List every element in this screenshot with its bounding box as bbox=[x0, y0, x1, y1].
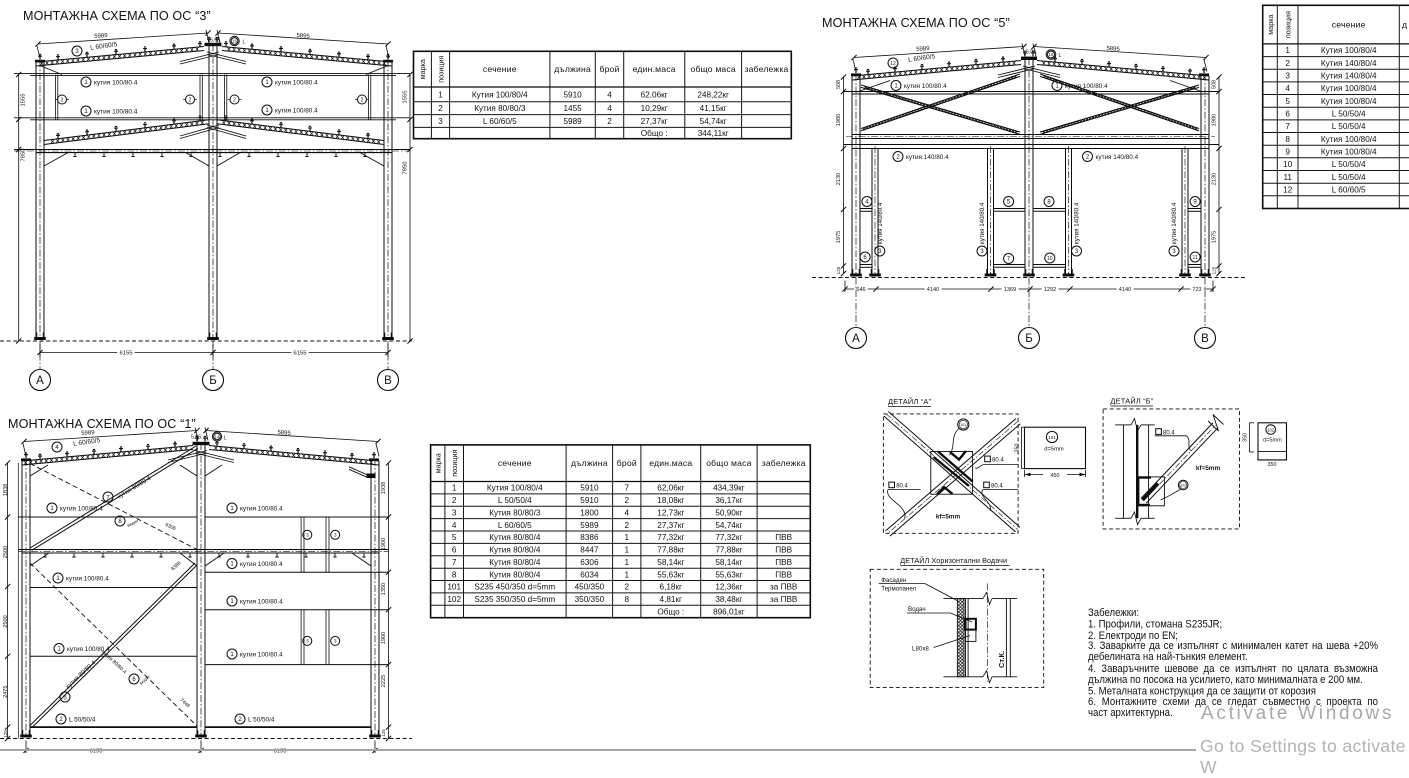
svg-text:7: 7 bbox=[106, 495, 110, 501]
svg-text:Общо :: Общо : bbox=[641, 129, 668, 138]
svg-text:марка: марка bbox=[418, 59, 427, 79]
svg-text:7448: 7448 bbox=[179, 697, 191, 709]
svg-text:3: 3 bbox=[1172, 249, 1176, 255]
svg-text:един.маса: един.маса bbox=[649, 458, 692, 468]
svg-text:2130: 2130 bbox=[1212, 173, 1218, 185]
svg-text:сечение: сечение bbox=[483, 64, 517, 74]
svg-text:Кутия 100/80/4: Кутия 100/80/4 bbox=[1321, 84, 1377, 93]
svg-text:2475: 2475 bbox=[3, 685, 9, 697]
svg-text:434,39кг: 434,39кг bbox=[713, 484, 745, 493]
svg-text:4: 4 bbox=[625, 509, 630, 518]
svg-text:2: 2 bbox=[452, 496, 457, 505]
svg-text:6: 6 bbox=[863, 255, 867, 261]
svg-text:L 50/50/4: L 50/50/4 bbox=[69, 717, 96, 724]
svg-text:за ПВВ: за ПВВ bbox=[770, 583, 798, 592]
svg-text:МОНТАЖНА СХЕМА ПО ОС “5”: МОНТАЖНА СХЕМА ПО ОС “5” bbox=[822, 16, 1010, 30]
svg-text:2500: 2500 bbox=[3, 615, 9, 627]
svg-text:5895: 5895 bbox=[1106, 46, 1120, 53]
svg-text:Ст.К.: Ст.К. bbox=[997, 651, 1006, 668]
svg-text:кутия 100/80.4: кутия 100/80.4 bbox=[275, 80, 318, 87]
svg-text:1975: 1975 bbox=[836, 231, 842, 243]
svg-text:5910: 5910 bbox=[563, 90, 582, 99]
svg-text:16: 16 bbox=[232, 39, 237, 44]
svg-text:3: 3 bbox=[334, 533, 337, 539]
svg-text:2130: 2130 bbox=[836, 173, 842, 185]
svg-text:1: 1 bbox=[438, 90, 443, 99]
svg-text:7850: 7850 bbox=[20, 149, 26, 162]
svg-text:8: 8 bbox=[118, 519, 122, 525]
svg-text:кутия 100/80.4: кутия 100/80.4 bbox=[240, 506, 283, 513]
svg-text:55,63кг: 55,63кг bbox=[657, 570, 684, 579]
svg-text:ДЕТАЙЛ “А”: ДЕТАЙЛ “А” bbox=[888, 397, 932, 406]
svg-text:8447: 8447 bbox=[580, 546, 599, 555]
svg-text:кутия 100/80.4: кутия 100/80.4 bbox=[275, 108, 318, 115]
svg-text:1: 1 bbox=[625, 558, 630, 567]
svg-text:кутия 100/80.4: кутия 100/80.4 bbox=[240, 599, 283, 606]
svg-text:А: А bbox=[36, 375, 44, 387]
svg-text:58,14кг: 58,14кг bbox=[657, 558, 684, 567]
svg-text:55,63кг: 55,63кг bbox=[715, 570, 742, 579]
svg-text:кутия 140/80.4: кутия 140/80.4 bbox=[1074, 202, 1081, 244]
svg-text:8: 8 bbox=[1047, 200, 1051, 206]
svg-text:Кутия 80/80/4: Кутия 80/80/4 bbox=[489, 570, 541, 579]
svg-text:5: 5 bbox=[63, 695, 67, 701]
svg-text:кутия 140/80.4: кутия 140/80.4 bbox=[979, 202, 986, 244]
svg-text:1: 1 bbox=[57, 647, 61, 653]
svg-text:2: 2 bbox=[189, 98, 192, 104]
svg-text:80.4: 80.4 bbox=[992, 458, 1004, 464]
svg-text:за ПВВ: за ПВВ bbox=[770, 595, 798, 604]
svg-text:6306: 6306 bbox=[164, 522, 177, 532]
svg-text:кутия 100/80.4: кутия 100/80.4 bbox=[67, 646, 110, 653]
svg-text:Кутия 80/80/4: Кутия 80/80/4 bbox=[489, 533, 541, 542]
svg-text:10: 10 bbox=[1283, 160, 1293, 169]
svg-text:3: 3 bbox=[334, 639, 337, 645]
svg-text:18,08кг: 18,08кг bbox=[657, 496, 684, 505]
svg-text:1: 1 bbox=[56, 576, 60, 582]
svg-text:4140: 4140 bbox=[1119, 287, 1131, 293]
svg-text:Кутия 100/80/4: Кутия 100/80/4 bbox=[472, 90, 528, 99]
svg-text:В: В bbox=[1201, 333, 1209, 345]
svg-text:2: 2 bbox=[625, 583, 630, 592]
svg-text:общо маса: общо маса bbox=[706, 458, 751, 468]
svg-text:646: 646 bbox=[856, 287, 865, 293]
svg-text:марка: марка bbox=[434, 453, 443, 473]
svg-text:508: 508 bbox=[836, 80, 842, 89]
svg-text:101: 101 bbox=[1048, 435, 1056, 440]
svg-text:2: 2 bbox=[625, 521, 630, 530]
svg-text:102: 102 bbox=[1181, 484, 1187, 488]
svg-text:8: 8 bbox=[452, 570, 457, 579]
svg-text:77,88кг: 77,88кг bbox=[657, 546, 684, 555]
svg-text:видач: видач bbox=[126, 518, 139, 528]
svg-text:16: 16 bbox=[1049, 52, 1054, 57]
svg-text:1: 1 bbox=[50, 506, 54, 512]
svg-text:5989: 5989 bbox=[94, 33, 108, 40]
svg-text:54,74кг: 54,74кг bbox=[715, 521, 742, 530]
svg-text:6155: 6155 bbox=[294, 351, 307, 357]
svg-text:ПВВ: ПВВ bbox=[775, 546, 792, 555]
svg-text:8386: 8386 bbox=[170, 560, 182, 572]
svg-text:1: 1 bbox=[625, 546, 630, 555]
svg-text:3: 3 bbox=[306, 533, 309, 539]
svg-text:Кутия 100/80/4: Кутия 100/80/4 bbox=[487, 484, 543, 493]
svg-text:1980: 1980 bbox=[836, 114, 842, 126]
svg-text:62,06кг: 62,06кг bbox=[657, 484, 684, 493]
svg-text:12,36кг: 12,36кг bbox=[715, 583, 742, 592]
svg-text:1: 1 bbox=[625, 533, 630, 542]
svg-text:1980: 1980 bbox=[1212, 114, 1218, 126]
svg-text:кутия 100/80.4: кутия 100/80.4 bbox=[60, 506, 103, 513]
svg-text:2: 2 bbox=[61, 98, 64, 104]
svg-text:6034: 6034 bbox=[580, 570, 599, 579]
svg-text:кутия 100/80.4: кутия 100/80.4 bbox=[1065, 83, 1108, 90]
svg-text:5.06.: 5.06. bbox=[210, 38, 222, 44]
svg-text:9: 9 bbox=[1285, 148, 1290, 157]
svg-text:1555: 1555 bbox=[403, 91, 409, 104]
svg-text:общо маса: общо маса bbox=[690, 64, 735, 74]
svg-text:1: 1 bbox=[230, 652, 234, 658]
svg-text:сечение: сечение bbox=[498, 458, 532, 468]
svg-text:125: 125 bbox=[1212, 266, 1217, 274]
svg-text:Кутия 100/80/4: Кутия 100/80/4 bbox=[1321, 97, 1377, 106]
svg-text:позиция: позиция bbox=[436, 56, 445, 83]
svg-text:4140: 4140 bbox=[927, 287, 939, 293]
svg-text:8: 8 bbox=[625, 595, 630, 604]
svg-text:Кутия 100/80/4: Кутия 100/80/4 bbox=[1321, 135, 1377, 144]
svg-text:5: 5 bbox=[452, 533, 457, 542]
svg-text:ПВВ: ПВВ bbox=[775, 558, 792, 567]
svg-text:896,01кг: 896,01кг bbox=[713, 608, 745, 617]
svg-text:101: 101 bbox=[960, 423, 966, 427]
svg-text:забележка: забележка bbox=[762, 458, 806, 468]
svg-text:Кутия 100/80/4: Кутия 100/80/4 bbox=[1321, 148, 1377, 157]
svg-text:дължина: дължина bbox=[554, 64, 591, 74]
svg-text:S235 350/350 d=5mm: S235 350/350 d=5mm bbox=[474, 595, 555, 604]
svg-text:2: 2 bbox=[361, 98, 364, 104]
svg-text:344,11кг: 344,11кг bbox=[698, 129, 729, 138]
svg-text:Водач: Водач bbox=[908, 606, 926, 613]
svg-text:5: 5 bbox=[1007, 200, 1011, 206]
svg-text:6: 6 bbox=[452, 546, 457, 555]
svg-text:Кутия 80/80/3: Кутия 80/80/3 bbox=[489, 509, 541, 518]
svg-text:27,37кг: 27,37кг bbox=[641, 117, 668, 126]
svg-text:S235 450/350 d=5mm: S235 450/350 d=5mm bbox=[474, 583, 555, 592]
svg-text:ПВВ: ПВВ bbox=[775, 533, 792, 542]
svg-text:27,37кг: 27,37кг bbox=[657, 521, 684, 530]
svg-text:10: 10 bbox=[1047, 256, 1053, 262]
svg-text:5989: 5989 bbox=[580, 521, 599, 530]
svg-text:125: 125 bbox=[836, 266, 841, 274]
svg-text:1555: 1555 bbox=[20, 94, 26, 107]
svg-text:кутия 80/80.4: кутия 80/80.4 bbox=[65, 659, 98, 690]
svg-text:L 50/50/4: L 50/50/4 bbox=[1332, 173, 1366, 182]
svg-text:Кутия 140/80/4: Кутия 140/80/4 bbox=[1321, 72, 1377, 81]
svg-text:2: 2 bbox=[1086, 155, 1090, 161]
svg-text:77,88кг: 77,88кг bbox=[715, 546, 742, 555]
svg-text:350: 350 bbox=[1242, 433, 1248, 442]
svg-text:4: 4 bbox=[55, 445, 59, 451]
svg-text:д: д bbox=[1402, 20, 1407, 30]
svg-text:L 50/50/4: L 50/50/4 bbox=[1332, 160, 1366, 169]
svg-text:5910: 5910 bbox=[580, 496, 599, 505]
svg-text:ДЕТАЙЛ Хоризонтални Водачи: ДЕТАЙЛ Хоризонтални Водачи bbox=[900, 556, 1007, 565]
svg-text:5989: 5989 bbox=[916, 46, 930, 53]
svg-text:2: 2 bbox=[607, 117, 612, 126]
svg-text:L 60/60/5: L 60/60/5 bbox=[498, 521, 532, 530]
svg-text:248,22кг: 248,22кг bbox=[697, 90, 729, 99]
svg-text:6,18кг: 6,18кг bbox=[660, 583, 683, 592]
svg-text:8386: 8386 bbox=[580, 533, 599, 542]
svg-text:77,32кг: 77,32кг bbox=[715, 533, 742, 542]
svg-text:L 60/60/5: L 60/60/5 bbox=[73, 437, 101, 448]
svg-text:2225: 2225 bbox=[381, 675, 387, 687]
svg-text:1: 1 bbox=[230, 599, 234, 605]
svg-text:7: 7 bbox=[625, 484, 630, 493]
svg-text:1: 1 bbox=[230, 562, 234, 568]
svg-text:1: 1 bbox=[265, 80, 269, 86]
svg-text:12: 12 bbox=[890, 61, 896, 67]
svg-text:1800: 1800 bbox=[580, 509, 599, 518]
svg-text:кутия 140/80.4: кутия 140/80.4 bbox=[877, 202, 884, 244]
svg-text:7: 7 bbox=[1285, 122, 1290, 131]
svg-text:1900: 1900 bbox=[381, 538, 387, 550]
svg-text:кутия 100/80.4: кутия 100/80.4 bbox=[240, 652, 283, 659]
svg-text:МОНТАЖНА СХЕМА ПО ОС “1”: МОНТАЖНА СХЕМА ПО ОС “1” bbox=[8, 417, 196, 431]
svg-text:41,15кг: 41,15кг bbox=[700, 104, 727, 113]
svg-text:1: 1 bbox=[1055, 84, 1059, 90]
svg-text:350: 350 bbox=[1268, 462, 1277, 468]
svg-text:2: 2 bbox=[1285, 59, 1290, 68]
svg-text:6155: 6155 bbox=[120, 351, 133, 357]
svg-text:2: 2 bbox=[438, 104, 443, 113]
svg-text:брой: брой bbox=[617, 458, 637, 468]
svg-text:8: 8 bbox=[1285, 135, 1290, 144]
svg-text:723: 723 bbox=[1192, 287, 1201, 293]
svg-text:L 50/50/4: L 50/50/4 bbox=[1332, 110, 1366, 119]
svg-text:видач: видач bbox=[138, 674, 150, 686]
svg-text:6: 6 bbox=[1285, 110, 1290, 119]
svg-text:1292: 1292 bbox=[1044, 287, 1056, 293]
svg-text:80.4: 80.4 bbox=[991, 484, 1003, 490]
svg-text:кутия 140/80.4: кутия 140/80.4 bbox=[1096, 154, 1139, 161]
svg-text:7: 7 bbox=[452, 558, 457, 567]
svg-text:2: 2 bbox=[896, 155, 900, 161]
svg-text:L 50/50/4: L 50/50/4 bbox=[248, 717, 275, 724]
svg-text:5: 5 bbox=[1285, 97, 1290, 106]
svg-text:80.4: 80.4 bbox=[896, 484, 908, 490]
svg-text:7850: 7850 bbox=[403, 162, 409, 175]
svg-text:kf=5mm: kf=5mm bbox=[1196, 465, 1221, 472]
svg-text:кутия 100/80.4: кутия 100/80.4 bbox=[94, 109, 138, 116]
svg-text:L 60/60/5: L 60/60/5 bbox=[90, 41, 118, 52]
svg-text:36,17кг: 36,17кг bbox=[715, 496, 742, 505]
svg-text:d=5mm: d=5mm bbox=[1044, 447, 1064, 453]
svg-text:14: 14 bbox=[215, 434, 220, 439]
svg-text:L 60/60/5: L 60/60/5 bbox=[1332, 186, 1366, 195]
svg-text:Б: Б bbox=[1025, 333, 1033, 345]
svg-text:6: 6 bbox=[132, 677, 136, 683]
svg-text:1975: 1975 bbox=[1212, 231, 1218, 243]
svg-text:125: 125 bbox=[3, 730, 8, 738]
svg-text:1838: 1838 bbox=[3, 484, 9, 496]
svg-text:6306: 6306 bbox=[580, 558, 599, 567]
svg-text:L: L bbox=[1059, 53, 1062, 59]
svg-text:2: 2 bbox=[59, 717, 63, 723]
svg-text:кутия 140/80.4: кутия 140/80.4 bbox=[1171, 202, 1178, 244]
svg-text:А: А bbox=[852, 333, 860, 345]
svg-text:4,81кг: 4,81кг bbox=[660, 595, 683, 604]
svg-text:кутия 100/80.4: кутия 100/80.4 bbox=[66, 576, 109, 583]
svg-text:kf=5mm: kf=5mm bbox=[936, 513, 961, 520]
svg-text:9: 9 bbox=[1193, 200, 1197, 206]
svg-text:Кутия 100/80/4: Кутия 100/80/4 bbox=[1321, 46, 1377, 55]
svg-text:Термопанел: Термопанел bbox=[881, 586, 916, 593]
svg-text:4: 4 bbox=[607, 90, 612, 99]
svg-text:L80x8: L80x8 bbox=[912, 645, 929, 652]
svg-text:54,74кг: 54,74кг bbox=[700, 117, 727, 126]
svg-text:2500: 2500 bbox=[3, 546, 9, 558]
svg-text:1: 1 bbox=[452, 484, 457, 493]
svg-text:2: 2 bbox=[625, 496, 630, 505]
svg-text:L 50/50/4: L 50/50/4 bbox=[1332, 122, 1366, 131]
svg-text:1: 1 bbox=[625, 570, 630, 579]
svg-text:МОНТАЖНА СХЕМА ПО ОС “3”: МОНТАЖНА СХЕМА ПО ОС “3” bbox=[23, 9, 211, 23]
svg-text:Кутия 80/80/4: Кутия 80/80/4 bbox=[489, 546, 541, 555]
svg-text:508: 508 bbox=[1212, 80, 1218, 89]
svg-text:5989: 5989 bbox=[81, 430, 95, 437]
svg-text:5895: 5895 bbox=[296, 33, 310, 40]
svg-text:кутия 140/80.4: кутия 140/80.4 bbox=[906, 154, 949, 161]
svg-text:3: 3 bbox=[438, 117, 443, 126]
svg-text:1369: 1369 bbox=[1004, 287, 1016, 293]
svg-text:125: 125 bbox=[381, 729, 386, 737]
svg-text:3: 3 bbox=[878, 249, 882, 255]
svg-text:брой: брой bbox=[599, 64, 619, 74]
svg-text:11: 11 bbox=[1283, 173, 1292, 182]
svg-text:В: В bbox=[384, 375, 392, 387]
svg-text:101: 101 bbox=[447, 583, 461, 592]
svg-text:2: 2 bbox=[233, 98, 236, 104]
svg-text:350/350: 350/350 bbox=[575, 595, 605, 604]
svg-text:10,29кг: 10,29кг bbox=[641, 104, 668, 113]
svg-text:3: 3 bbox=[452, 509, 457, 518]
svg-text:L 60/60/5: L 60/60/5 bbox=[908, 53, 936, 64]
svg-text:дължина: дължина bbox=[571, 458, 608, 468]
svg-text:4: 4 bbox=[607, 104, 612, 113]
svg-text:1: 1 bbox=[230, 506, 234, 512]
svg-text:11: 11 bbox=[1192, 255, 1197, 261]
svg-text:ДЕТАЙЛ “Б”: ДЕТАЙЛ “Б” bbox=[1110, 397, 1153, 406]
svg-text:102: 102 bbox=[447, 595, 461, 604]
svg-text:d=5mm: d=5mm bbox=[1263, 438, 1282, 444]
svg-text:5989: 5989 bbox=[563, 117, 582, 126]
svg-text:1: 1 bbox=[84, 80, 88, 86]
svg-text:450/350: 450/350 bbox=[575, 583, 605, 592]
svg-text:2: 2 bbox=[238, 717, 242, 723]
svg-text:Фасаден: Фасаден bbox=[881, 577, 906, 584]
svg-text:един.маса: един.маса bbox=[633, 64, 676, 74]
svg-text:1938: 1938 bbox=[381, 482, 387, 494]
svg-text:L 60/60/5: L 60/60/5 bbox=[483, 117, 517, 126]
svg-text:1455: 1455 bbox=[563, 104, 582, 113]
svg-text:позиция: позиция bbox=[1284, 11, 1293, 38]
svg-text:3: 3 bbox=[75, 49, 79, 55]
svg-text:марка: марка bbox=[1266, 14, 1275, 34]
svg-text:450: 450 bbox=[1051, 473, 1060, 479]
svg-text:12: 12 bbox=[1283, 186, 1293, 195]
svg-text:сечение: сечение bbox=[1332, 20, 1366, 30]
svg-text:кутия 80/80.4: кутия 80/80.4 bbox=[100, 649, 127, 675]
svg-text:Б: Б bbox=[209, 375, 217, 387]
svg-text:3: 3 bbox=[1075, 249, 1079, 255]
svg-text:4: 4 bbox=[1285, 84, 1290, 93]
svg-text:1900: 1900 bbox=[381, 632, 387, 644]
svg-text:1350: 1350 bbox=[381, 583, 387, 595]
svg-text:кутия 80/80.4: кутия 80/80.4 bbox=[116, 475, 153, 501]
svg-text:Кутия 80/80/3: Кутия 80/80/3 bbox=[474, 104, 526, 113]
svg-text:5910: 5910 bbox=[580, 484, 599, 493]
svg-text:77,32кг: 77,32кг bbox=[657, 533, 684, 542]
svg-text:3: 3 bbox=[980, 249, 984, 255]
svg-text:38,48кг: 38,48кг bbox=[715, 595, 742, 604]
svg-text:забележка: забележка bbox=[744, 64, 788, 74]
svg-text:7: 7 bbox=[1007, 257, 1011, 263]
svg-text:L 50/50/4: L 50/50/4 bbox=[498, 496, 532, 505]
svg-text:102: 102 bbox=[1267, 428, 1275, 433]
svg-text:позиция: позиция bbox=[450, 450, 459, 477]
svg-text:350: 350 bbox=[1015, 444, 1021, 453]
svg-text:ПВВ: ПВВ bbox=[775, 570, 792, 579]
svg-text:Кутия 140/80/4: Кутия 140/80/4 bbox=[1321, 59, 1377, 68]
svg-text:1: 1 bbox=[894, 84, 898, 90]
svg-text:1: 1 bbox=[84, 109, 88, 115]
svg-text:3: 3 bbox=[306, 639, 309, 645]
svg-text:4: 4 bbox=[452, 521, 457, 530]
svg-text:50,90кг: 50,90кг bbox=[715, 509, 742, 518]
svg-text:3: 3 bbox=[1285, 72, 1290, 81]
svg-text:кутия 100/80.4: кутия 100/80.4 bbox=[240, 561, 283, 568]
svg-text:Общо :: Общо : bbox=[657, 608, 684, 617]
svg-text:L: L bbox=[224, 436, 227, 442]
svg-text:1: 1 bbox=[265, 108, 269, 114]
svg-text:62,06кг: 62,06кг bbox=[641, 90, 668, 99]
svg-text:Кутия 80/80/4: Кутия 80/80/4 bbox=[489, 558, 541, 567]
svg-text:4: 4 bbox=[865, 200, 869, 206]
svg-text:5895: 5895 bbox=[277, 430, 291, 437]
svg-text:кутия 100/80.4: кутия 100/80.4 bbox=[904, 83, 947, 90]
svg-text:L: L bbox=[243, 40, 246, 46]
svg-text:1: 1 bbox=[1285, 46, 1290, 55]
svg-text:кутия 100/80.4: кутия 100/80.4 bbox=[94, 80, 138, 87]
svg-text:58,14кг: 58,14кг bbox=[715, 558, 742, 567]
svg-text:12,73кг: 12,73кг bbox=[657, 509, 684, 518]
